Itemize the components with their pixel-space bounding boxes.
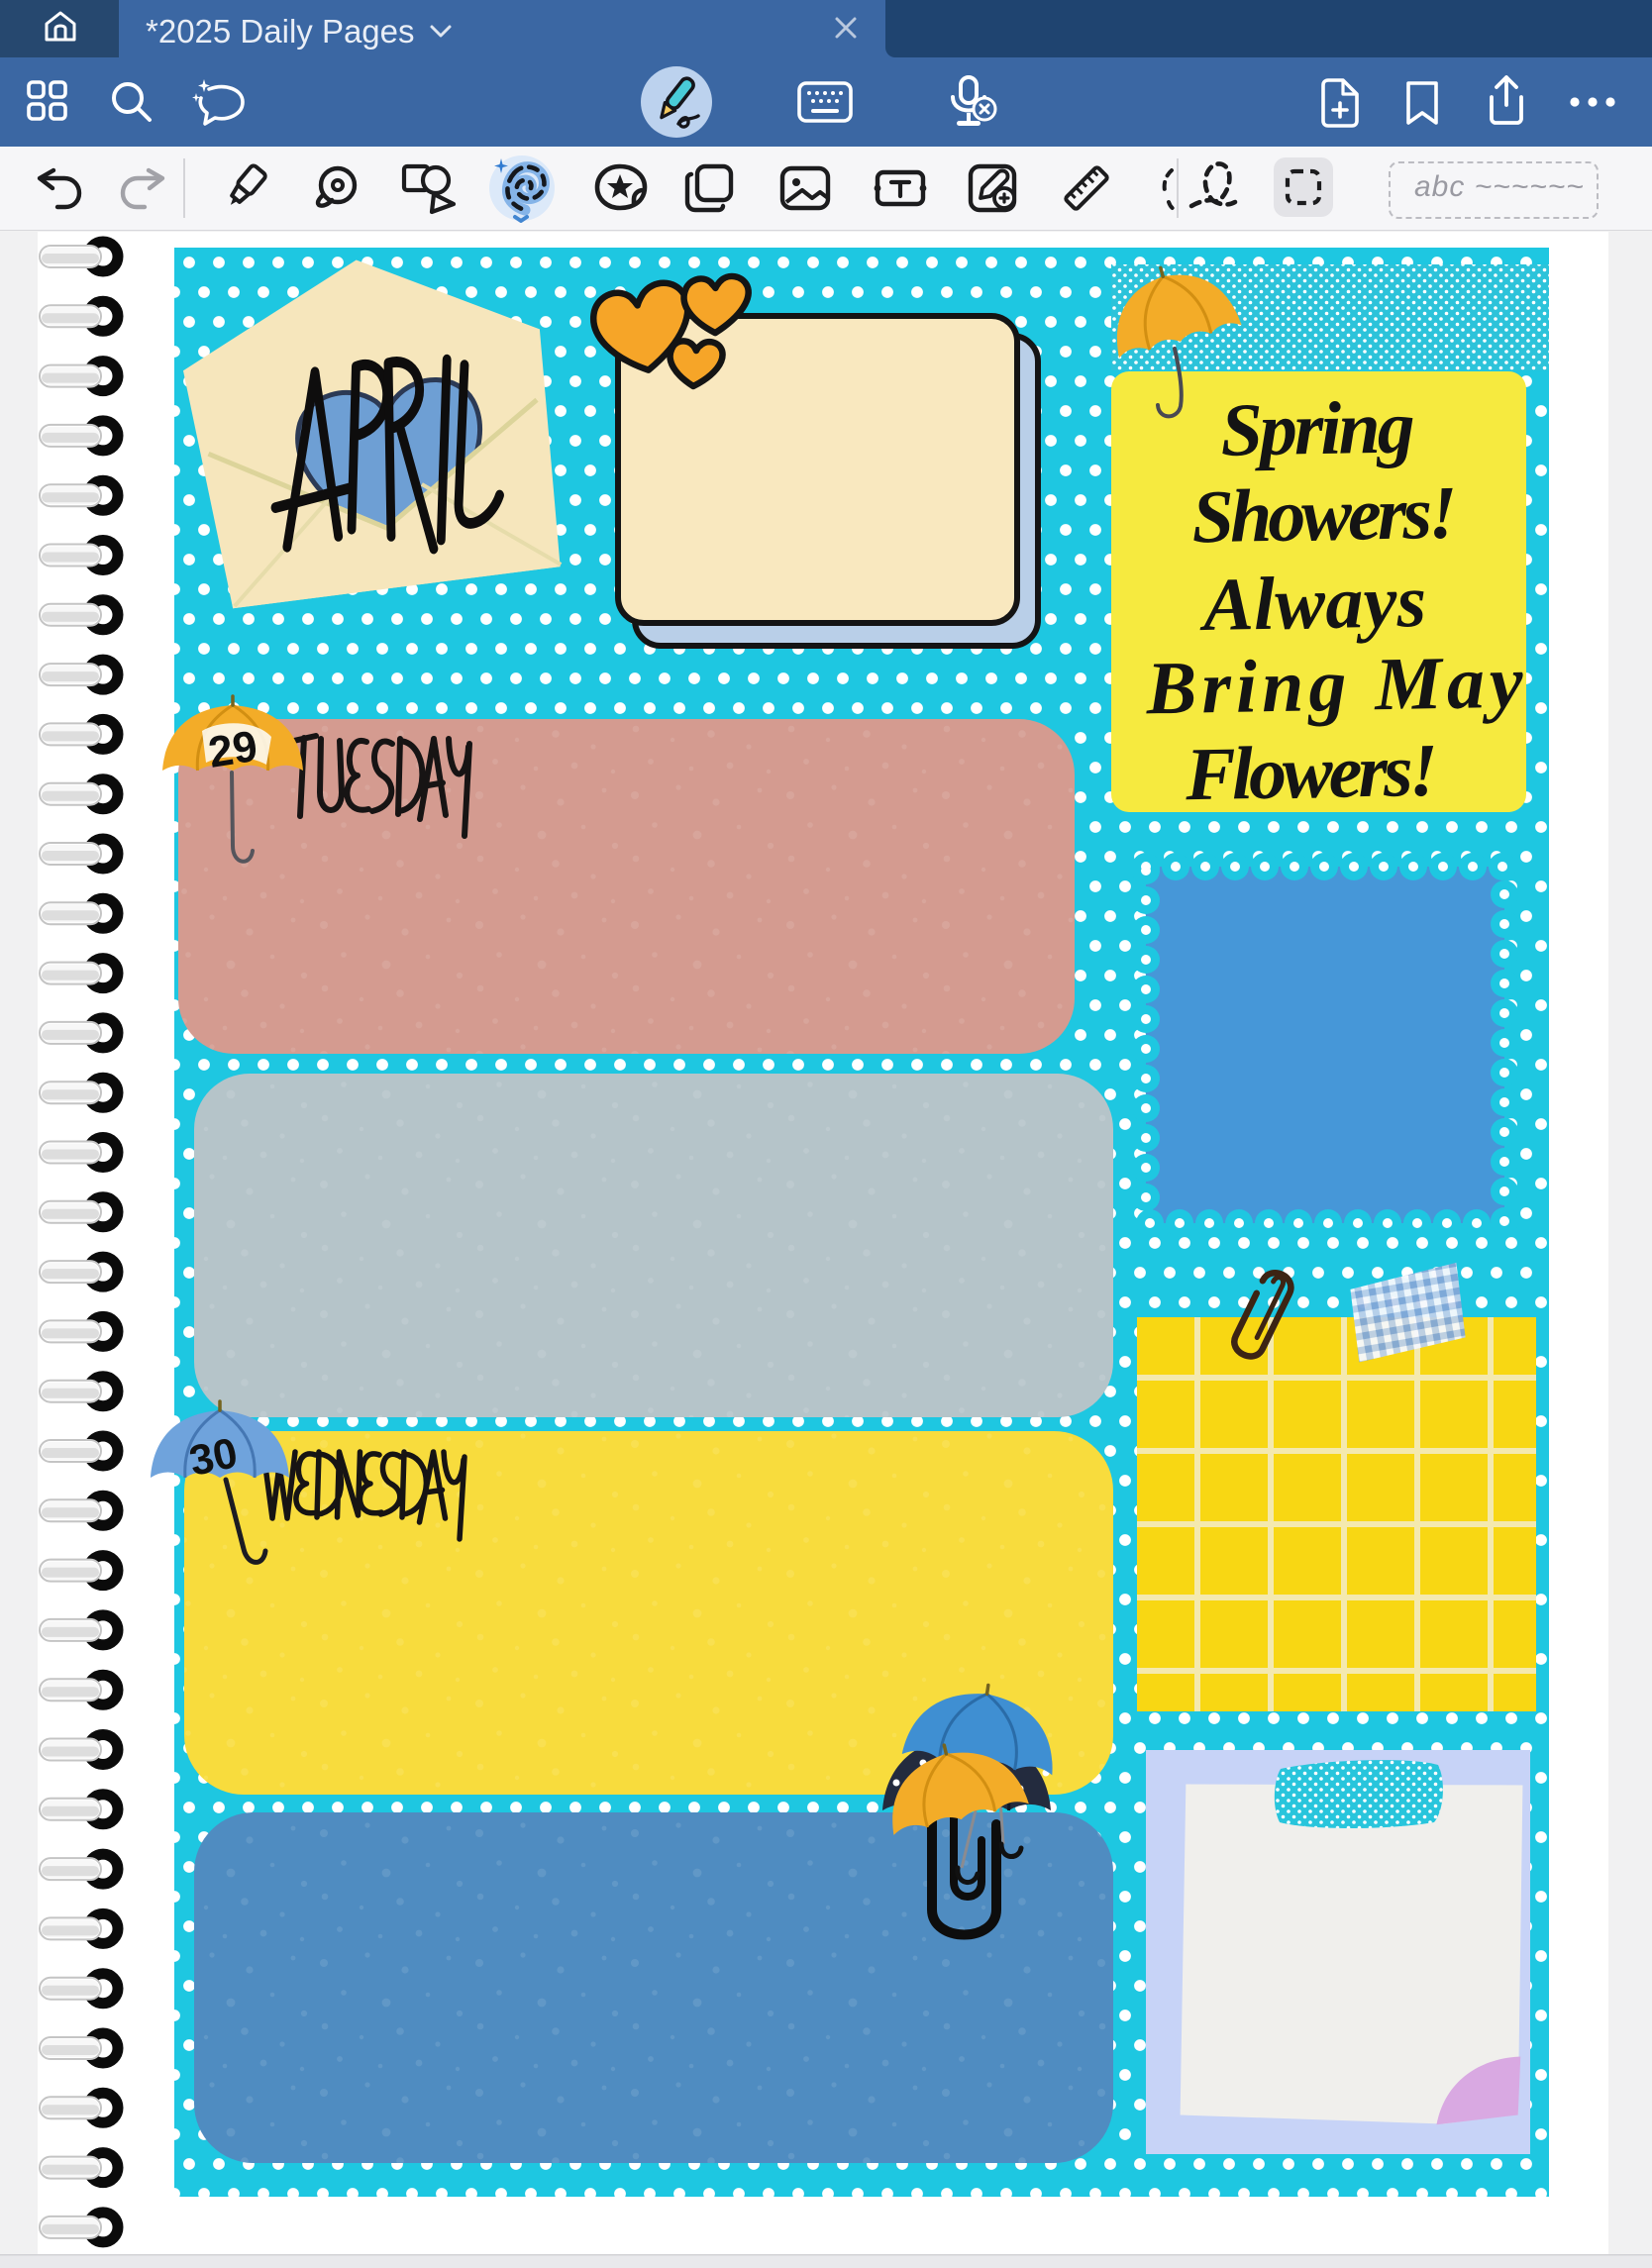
svg-text:Flowers!: Flowers!	[1184, 729, 1438, 816]
svg-text:Spring: Spring	[1220, 385, 1415, 471]
svg-text:29: 29	[205, 722, 260, 777]
svg-text:30: 30	[185, 1429, 242, 1486]
svg-text:Showers!: Showers!	[1191, 471, 1458, 560]
svg-text:Bring May: Bring May	[1145, 641, 1524, 731]
svg-text:Always: Always	[1198, 560, 1426, 647]
